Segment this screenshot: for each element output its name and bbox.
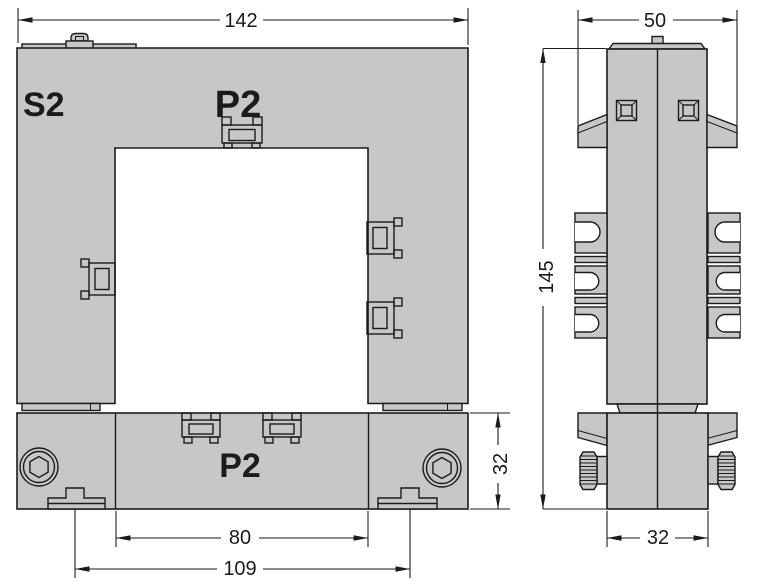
thumb-screw-right bbox=[708, 452, 735, 490]
side-bottom-wing-right bbox=[707, 413, 737, 446]
label-s2: S2 bbox=[23, 86, 65, 124]
current-transformer-dimension-drawing: S2 P2 P2 142 80 109 bbox=[0, 0, 762, 588]
svg-text:109: 109 bbox=[223, 558, 256, 580]
side-top-plate bbox=[609, 37, 705, 50]
svg-text:145: 145 bbox=[536, 260, 558, 293]
side-upper-wing-right bbox=[707, 115, 737, 148]
terminal-block-left bbox=[575, 213, 607, 338]
svg-text:32: 32 bbox=[490, 453, 512, 475]
leg-tongue-right bbox=[383, 404, 462, 411]
side-view: 50 145 32 bbox=[536, 10, 740, 549]
label-p2-bottom: P2 bbox=[219, 447, 261, 485]
svg-text:32: 32 bbox=[647, 527, 669, 549]
label-p2-top: P2 bbox=[215, 84, 261, 126]
side-bottom-wing-left bbox=[578, 413, 607, 446]
dimension-window-width: 80 bbox=[116, 511, 368, 549]
svg-text:80: 80 bbox=[229, 527, 251, 549]
dimension-body-depth: 32 bbox=[607, 511, 708, 549]
svg-text:142: 142 bbox=[224, 10, 257, 32]
technical-drawing: S2 P2 P2 142 80 109 bbox=[0, 0, 762, 588]
front-view: S2 P2 P2 142 80 109 bbox=[17, 8, 512, 580]
side-upper-wing-left bbox=[578, 115, 607, 148]
thumb-screw-left bbox=[580, 452, 607, 490]
terminal-block-right bbox=[708, 213, 740, 338]
svg-text:50: 50 bbox=[644, 10, 666, 32]
dimension-bar-height: 32 bbox=[470, 413, 512, 509]
leg-tongue-left bbox=[22, 404, 100, 411]
